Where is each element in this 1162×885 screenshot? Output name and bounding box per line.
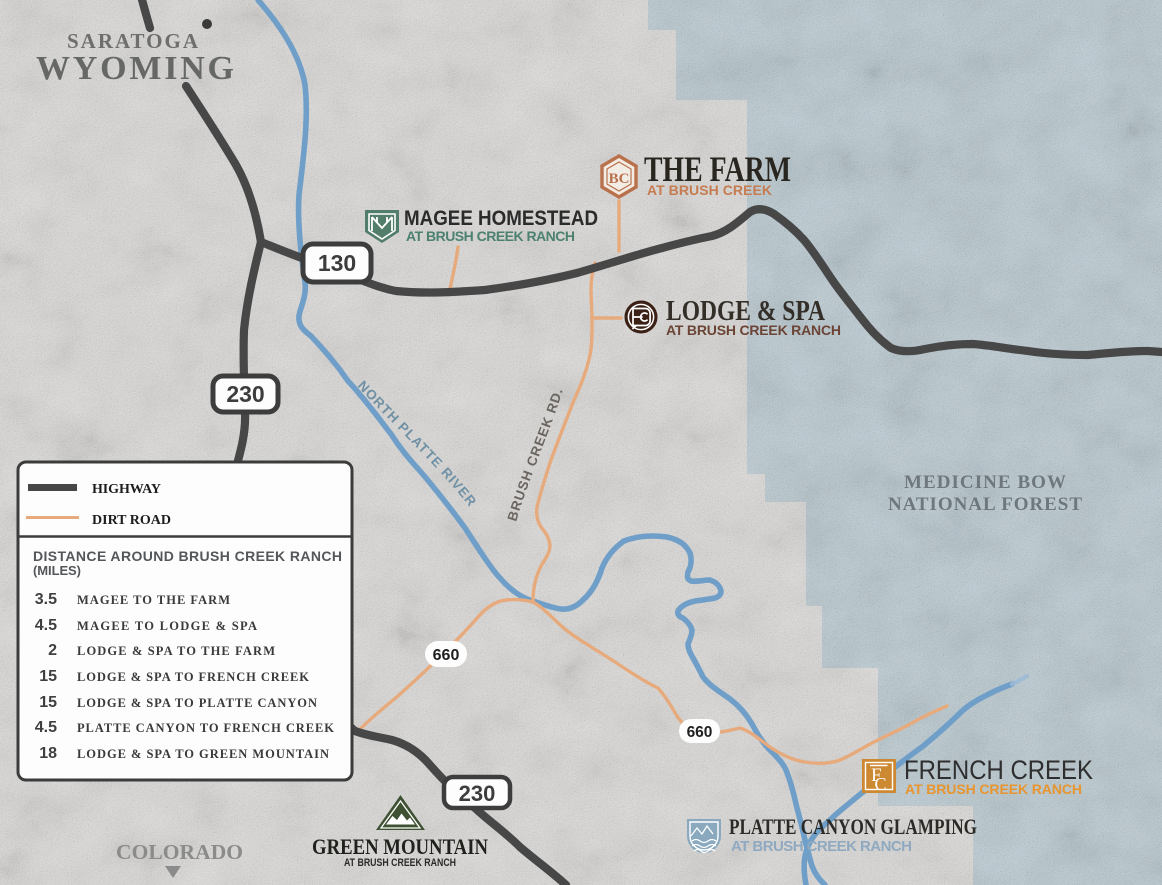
svg-text:COLORADO: COLORADO [116, 840, 243, 864]
svg-text:PLATTE CANYON TO FRENCH CREEK: PLATTE CANYON TO FRENCH CREEK [77, 721, 334, 735]
svg-text:PLATTE CANYON GLAMPING: PLATTE CANYON GLAMPING [729, 814, 977, 839]
svg-text:WYOMING: WYOMING [36, 50, 234, 87]
svg-text:15: 15 [39, 694, 57, 711]
svg-text:660: 660 [687, 724, 713, 741]
svg-text:MAGEE TO LODGE & SPA: MAGEE TO LODGE & SPA [77, 619, 257, 633]
svg-text:AT BRUSH CREEK: AT BRUSH CREEK [647, 182, 772, 198]
svg-text:C: C [875, 774, 887, 794]
svg-text:LODGE & SPA TO FRENCH CREEK: LODGE & SPA TO FRENCH CREEK [77, 670, 309, 684]
svg-text:130: 130 [318, 250, 356, 276]
svg-text:AT BRUSH CREEK RANCH: AT BRUSH CREEK RANCH [406, 228, 575, 244]
svg-text:230: 230 [459, 781, 496, 806]
svg-text:MAGEE HOMESTEAD: MAGEE HOMESTEAD [404, 207, 598, 230]
svg-text:3.5: 3.5 [35, 591, 57, 608]
svg-text:HIGHWAY: HIGHWAY [92, 482, 161, 497]
svg-text:2: 2 [48, 642, 57, 659]
svg-text:230: 230 [226, 381, 264, 407]
svg-text:18: 18 [39, 745, 57, 762]
svg-text:LODGE & SPA TO THE FARM: LODGE & SPA TO THE FARM [77, 644, 275, 658]
svg-text:(MILES): (MILES) [33, 563, 81, 578]
svg-text:LODGE & SPA TO PLATTE CANYON: LODGE & SPA TO PLATTE CANYON [77, 696, 317, 710]
svg-text:15: 15 [39, 668, 57, 685]
svg-text:DIRT ROAD: DIRT ROAD [92, 513, 171, 528]
svg-text:BC: BC [609, 171, 630, 187]
svg-text:MEDICINE BOW: MEDICINE BOW [904, 472, 1066, 493]
svg-text:4.5: 4.5 [35, 617, 57, 634]
svg-text:DISTANCE AROUND BRUSH CREEK RA: DISTANCE AROUND BRUSH CREEK RANCH [33, 548, 342, 564]
svg-text:MAGEE TO THE FARM: MAGEE TO THE FARM [77, 593, 230, 607]
svg-text:GREEN MOUNTAIN: GREEN MOUNTAIN [312, 834, 488, 859]
svg-text:660: 660 [433, 647, 460, 664]
svg-text:AT BRUSH CREEK RANCH: AT BRUSH CREEK RANCH [731, 838, 912, 855]
svg-text:AT BRUSH CREEK RANCH: AT BRUSH CREEK RANCH [666, 322, 841, 338]
svg-text:AT BRUSH CREEK RANCH: AT BRUSH CREEK RANCH [344, 857, 456, 869]
svg-text:AT BRUSH CREEK RANCH: AT BRUSH CREEK RANCH [905, 781, 1082, 797]
svg-text:LODGE & SPA TO GREEN MOUNTAIN: LODGE & SPA TO GREEN MOUNTAIN [77, 747, 329, 761]
svg-text:4.5: 4.5 [35, 719, 57, 736]
svg-text:NATIONAL FOREST: NATIONAL FOREST [888, 494, 1082, 515]
